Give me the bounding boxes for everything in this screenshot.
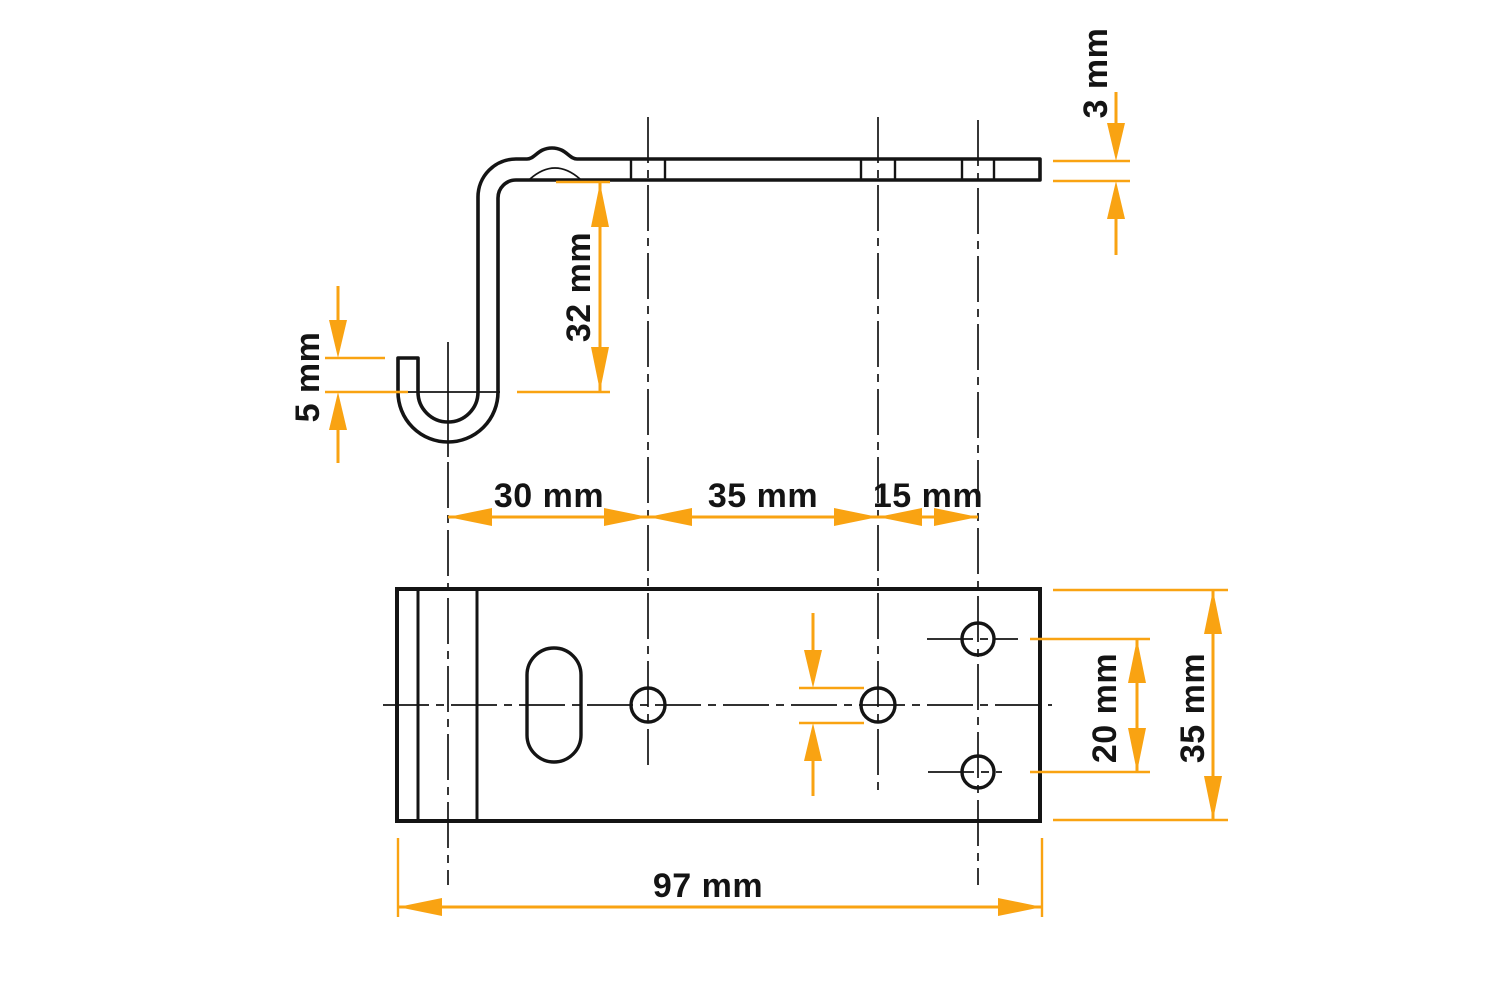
- dim-label-30mm: 30 mm: [494, 477, 604, 515]
- dimension-hook-tip: 5 mm: [289, 286, 408, 463]
- arrowhead: [398, 898, 442, 916]
- dimension-thickness: 3 mm: [1053, 28, 1130, 255]
- dimension-plate-width: 35 mm: [1053, 590, 1228, 820]
- arrowhead: [1204, 590, 1222, 634]
- arrowhead: [834, 508, 878, 526]
- arrowhead: [804, 723, 822, 761]
- arrowhead: [1128, 728, 1146, 772]
- dim-label-35mm-row: 35 mm: [708, 477, 818, 515]
- arrowhead: [604, 508, 648, 526]
- dim-label-20mm: 20 mm: [1086, 653, 1124, 763]
- dimension-plate-length: 97 mm: [398, 838, 1042, 917]
- dimension-drop-height: 32 mm: [517, 182, 610, 392]
- side-view: [398, 148, 1040, 442]
- arrowhead: [591, 347, 609, 391]
- bend-rib-inner-arc: [530, 168, 580, 179]
- drawing-canvas: 30 mm 35 mm 15 mm 97 mm 32 mm 5 mm: [0, 0, 1500, 1000]
- arrowhead: [804, 650, 822, 688]
- arrowhead: [448, 508, 492, 526]
- dim-label-32mm: 32 mm: [560, 232, 598, 342]
- dim-label-15mm: 15 mm: [873, 477, 983, 515]
- dim-label-97mm: 97 mm: [653, 867, 763, 905]
- arrowhead: [648, 508, 692, 526]
- arrowhead: [329, 320, 347, 358]
- arrowhead: [1107, 181, 1125, 219]
- arrowhead: [1107, 123, 1125, 161]
- arrowhead: [1204, 776, 1222, 820]
- arrowhead: [998, 898, 1042, 916]
- arrowhead: [1128, 639, 1146, 683]
- arrowhead: [591, 183, 609, 227]
- dim-label-5mm: 5 mm: [289, 332, 327, 423]
- dim-label-3mm: 3 mm: [1077, 28, 1115, 119]
- bracket-technical-drawing: 30 mm 35 mm 15 mm 97 mm 32 mm 5 mm: [0, 0, 1500, 1000]
- dim-label-35mm-side: 35 mm: [1174, 653, 1212, 763]
- dimension-hole-spacing-row: 30 mm 35 mm 15 mm: [448, 477, 983, 526]
- arrowhead: [329, 392, 347, 430]
- bracket-side-profile: [398, 148, 1040, 442]
